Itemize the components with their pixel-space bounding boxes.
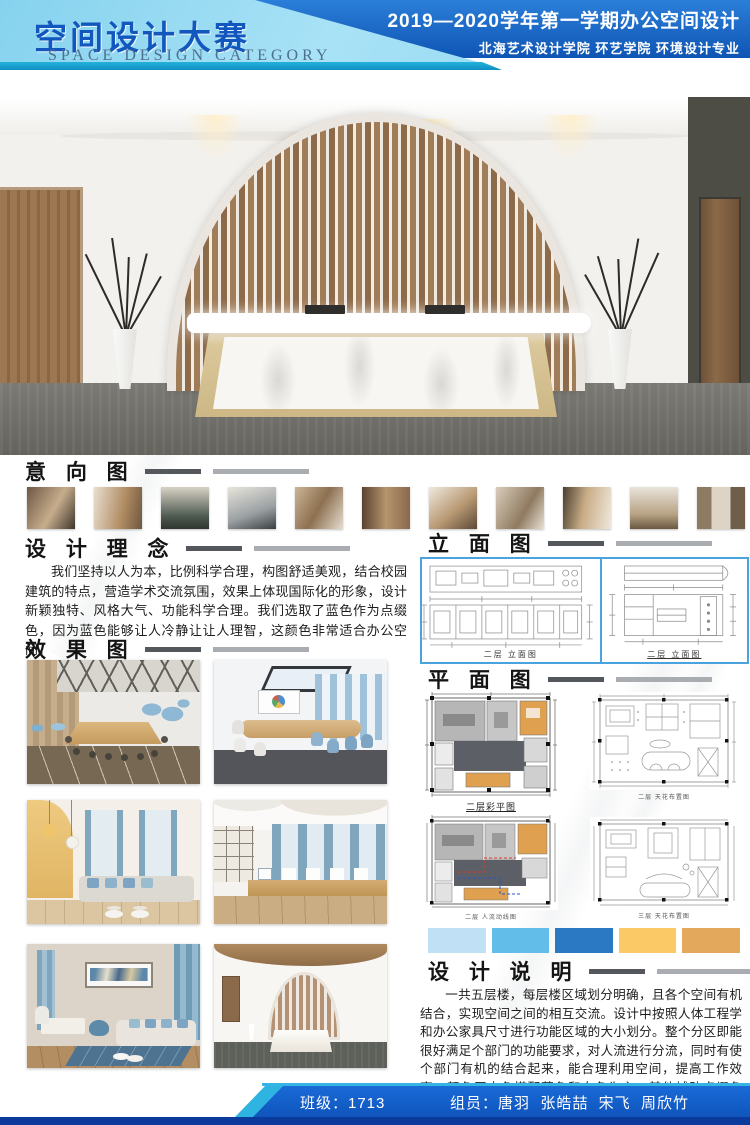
title-bar-dark [548,541,604,546]
elevation-caption: 二层 立面图 [602,649,747,660]
elevation-right-svg [602,559,747,662]
intent-thumbnail [429,487,477,529]
spotlight [185,115,245,161]
title-bar-light [616,541,712,546]
footer-accent-line [262,1083,750,1086]
desk-monitor [425,305,465,314]
title-bar-light [254,546,350,551]
plan1-svg [424,690,558,798]
plan-ceiling-level3 [590,817,738,909]
title-bar-dark [145,647,201,652]
intent-thumbnail [161,487,209,529]
elevation-drawing-left: 二层 立面图 [422,559,602,662]
plan3-svg [424,814,558,910]
section-title-notes: 设 计 说 明 [428,956,750,986]
title-bar-light [213,469,309,474]
palette-swatch [682,928,740,953]
render-lounge [27,800,200,924]
plan-caption: 二层 人流动线图 [424,912,558,921]
elevation-caption: 二层 立面图 [422,649,600,660]
render-executive-office [27,944,200,1068]
palette-swatch [555,928,613,953]
hero-image-reception [0,57,750,455]
class-label: 班级：1713 [300,1092,385,1113]
course-title: 2019—2020学年第一学期办公空间设计 [387,6,740,33]
palette-swatch [428,928,486,953]
palette-swatch [619,928,677,953]
palette-swatch [492,928,550,953]
plan-caption: 二层 天花布置图 [590,792,738,801]
title-bar-light [616,677,712,682]
intent-thumbnail [94,487,142,529]
elevation-left-svg [422,559,600,662]
render-reception-hall [214,944,387,1068]
footer-dark-strip [0,1117,750,1125]
title-bar-dark [145,469,201,474]
spotlight [540,115,600,161]
header-banner: 2019—2020学年第一学期办公空间设计 北海艺术设计学院 环艺学院 环境设计… [0,0,750,72]
section-label: 立 面 图 [428,528,538,558]
intent-thumbnail [27,487,75,529]
color-palette [428,928,740,953]
poster: 2019—2020学年第一学期办公空间设计 北海艺术设计学院 环艺学院 环境设计… [0,0,750,1125]
planter-vase-left [110,329,140,389]
world-map-decor [136,696,192,726]
intent-thumbnail [295,487,343,529]
section-label: 意 向 图 [25,456,135,486]
intent-thumbnail [228,487,276,529]
plan-caption: 三层 天花布置图 [590,911,738,920]
plan-caption: 二层彩平图 [424,800,558,813]
render-open-office [214,800,387,924]
section-title-elevation: 立 面 图 [428,528,712,558]
section-label: 设 计 理 念 [25,533,176,563]
plan-ceiling-level2 [590,692,738,790]
intent-image-strip [27,487,745,529]
plan4-svg [590,817,738,909]
title-bar-dark [186,546,242,551]
desk-marble-front [213,337,539,409]
plan-circulation-level2 [424,814,558,910]
intent-thumbnail [563,487,611,529]
dry-branches [70,217,180,337]
section-title-intent: 意 向 图 [25,456,309,486]
render-conference-room [214,660,387,784]
section-label: 设 计 说 明 [428,956,579,986]
render-meeting-room [27,660,200,784]
intent-thumbnail [362,487,410,529]
reception-desk [195,329,557,417]
elevation-drawing-right: 二层 立面图 [602,559,747,662]
header-right-block: 2019—2020学年第一学期办公空间设计 北海艺术设计学院 环艺学院 环境设计… [387,6,740,57]
plan-colored-level2 [424,690,558,798]
planter-vase-right [605,329,635,389]
wall-painting [85,962,153,988]
title-bar-dark [548,677,604,682]
desk-counter-band [187,313,591,333]
title-bar-dark [589,969,645,974]
members-label: 组员：唐羽 张皓喆 宋飞 周欣竹 [450,1092,689,1113]
hero-right-door [699,197,741,386]
title-bar-light [657,969,750,974]
title-bar-light [213,647,309,652]
elevation-drawings-box: 二层 立面图 二层 立面图 [420,557,749,664]
section-title-concept: 设 计 理 念 [25,533,350,563]
intent-thumbnail [630,487,678,529]
desk-monitor [305,305,345,314]
school-line: 北海艺术设计学院 环艺学院 环境设计专业 [387,38,740,57]
intent-thumbnail [697,487,745,529]
poster-subtitle-en: SPACE DESIGN CATEGORY [48,47,331,65]
intent-thumbnail [496,487,544,529]
plan2-svg [590,692,738,790]
